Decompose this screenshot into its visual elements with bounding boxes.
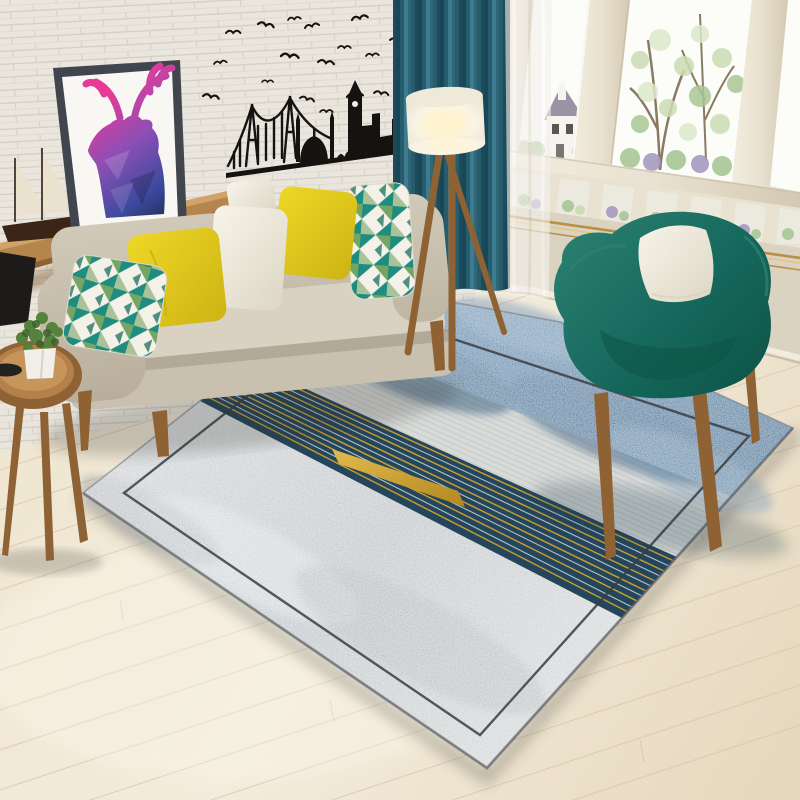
sheer-curtain [505, 0, 552, 298]
armchair-white-pillow [638, 225, 713, 302]
lamp-shade [405, 85, 485, 157]
teal-geometric-pillow-left [61, 253, 168, 359]
scene-canvas [0, 0, 800, 800]
living-room-photo [0, 0, 800, 800]
plant-pot [24, 348, 56, 379]
